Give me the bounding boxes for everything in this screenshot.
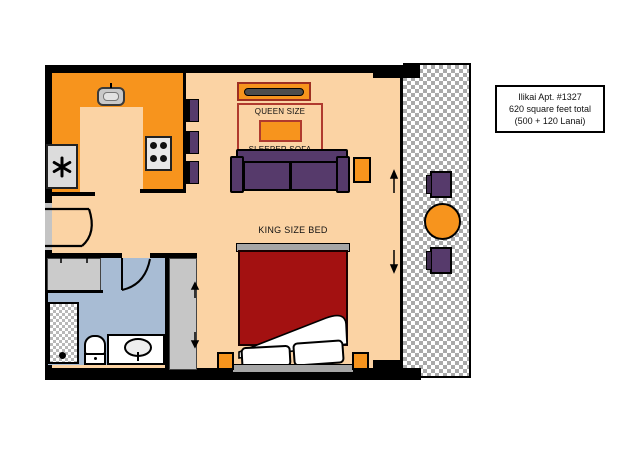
lanai-round-table (424, 203, 461, 240)
side-table (353, 157, 371, 183)
kitchen-wall-right (140, 189, 186, 193)
apt-area: 620 square feet total (509, 103, 591, 115)
bathroom-floor (101, 258, 165, 298)
wall-top-right-jut (373, 65, 420, 78)
chair-back (426, 175, 432, 194)
lanai-chair-top (430, 171, 452, 198)
sofa-arm-left (230, 156, 244, 193)
toilet-flush-icon (94, 357, 97, 360)
burner-icon (160, 142, 167, 149)
wall-bottom-extension (403, 368, 421, 380)
lanai-chair-bottom (430, 247, 452, 274)
shower-drain-icon (59, 352, 66, 359)
refrigerator (46, 144, 78, 189)
nightstand-right (352, 352, 369, 370)
kitchen-floor (80, 107, 143, 193)
bar-stool (186, 99, 199, 122)
closet-bedroom (169, 258, 197, 370)
sofa-seat (290, 161, 338, 191)
burner-icon (150, 142, 157, 149)
sofa-seat (243, 161, 291, 191)
kitchen-wall-left (45, 192, 95, 196)
info-box: Ilikai Apt. #1327 620 square feet total … (495, 85, 605, 133)
sofa-arm-right (336, 156, 350, 193)
closet-wall (45, 290, 103, 293)
floor-plan: QUEEN SIZE SLEEPER SOFA KING SIZE BED (0, 0, 640, 457)
king-bed (238, 250, 348, 346)
bed-headboard (232, 364, 354, 373)
burner-icon (150, 155, 157, 162)
entry-doorway (45, 203, 52, 250)
sofa-label-top: QUEEN SIZE (255, 107, 305, 116)
closet-entry (47, 258, 101, 291)
coffee-table (259, 120, 302, 142)
pillow (292, 339, 345, 366)
wall-bottom-right-jut (373, 360, 403, 380)
kitchen-sink (97, 87, 125, 106)
bar-stool (186, 161, 199, 184)
snowflake-icon (51, 156, 73, 178)
sink-basin (103, 92, 119, 101)
bed-label: KING SIZE BED (237, 225, 349, 235)
stove (145, 136, 172, 171)
apt-number: Ilikai Apt. #1327 (518, 91, 582, 103)
bar-stool (186, 131, 199, 154)
chair-back (426, 251, 432, 270)
tv-icon (244, 88, 304, 96)
toilet (84, 335, 106, 355)
faucet-icon (137, 352, 139, 361)
burner-icon (160, 155, 167, 162)
apt-area-breakdown: (500 + 120 Lanai) (515, 115, 586, 127)
nightstand-left (217, 352, 234, 370)
